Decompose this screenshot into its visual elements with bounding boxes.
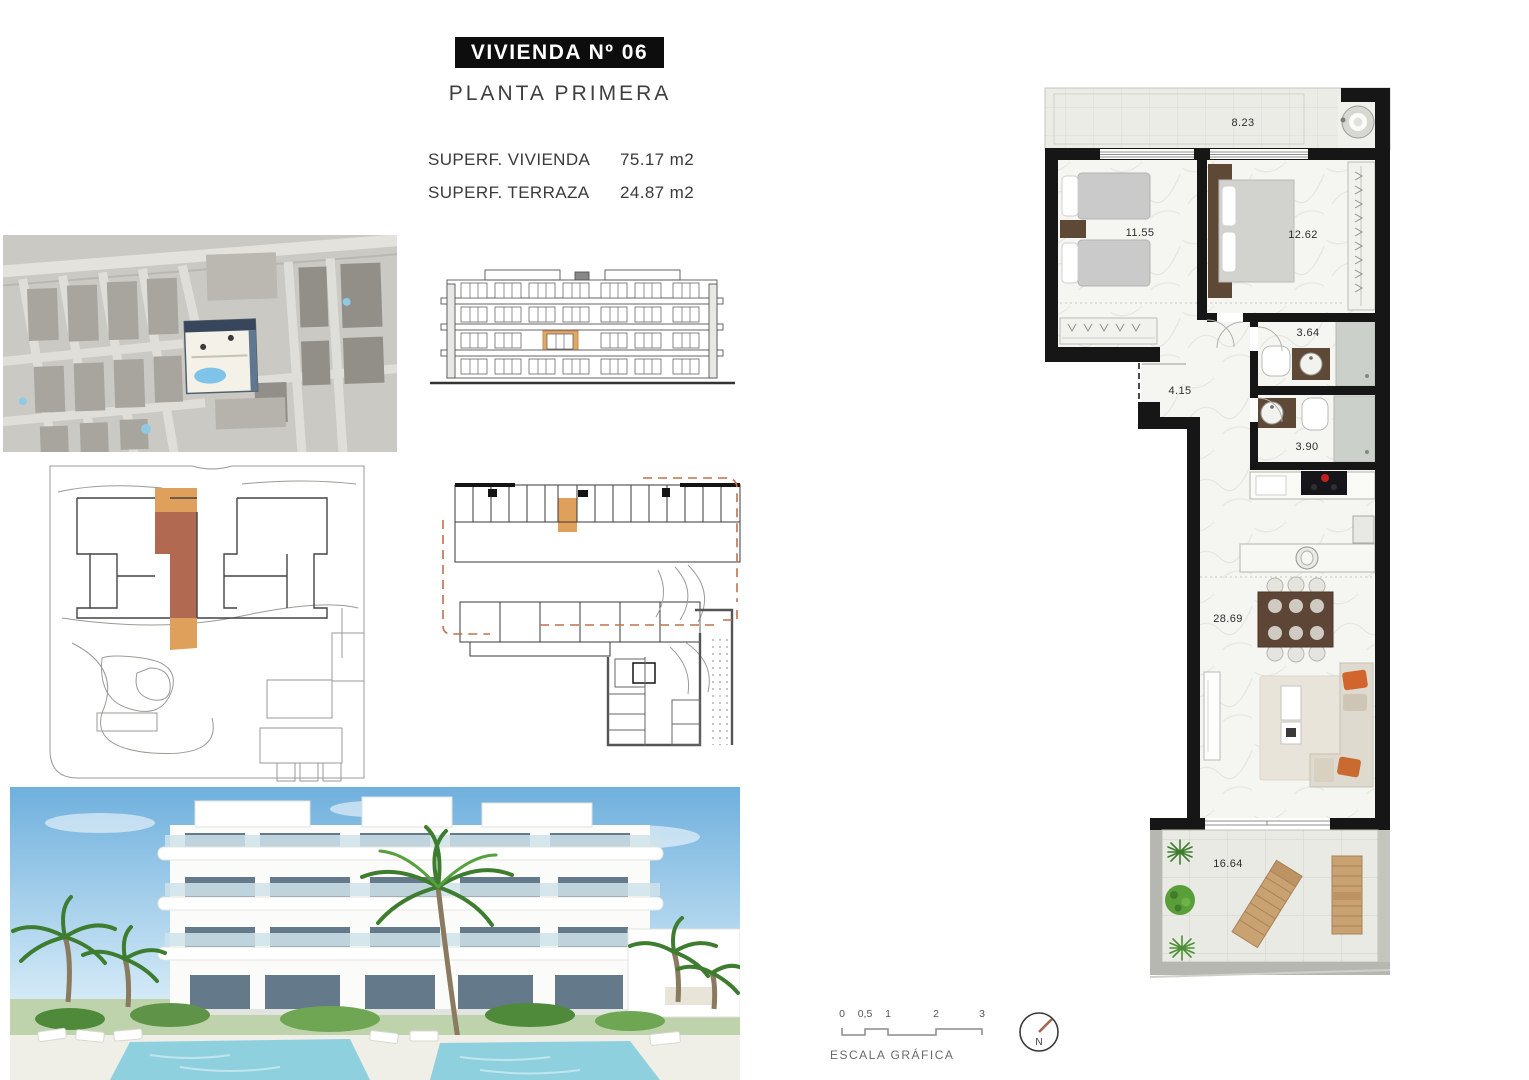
render-photo-figure [10, 787, 740, 1080]
scale-tick: 3 [979, 1008, 985, 1020]
shower [1336, 316, 1375, 386]
toilet [1262, 346, 1290, 376]
room-label-terrace-top: 8.23 [1231, 117, 1254, 129]
area-label: SUPERF. VIVIENDA [428, 150, 620, 170]
room-label-hallway: 4.15 [1168, 385, 1191, 397]
room-label-bedroom-2: 12.62 [1288, 229, 1318, 241]
key-plan-figure [430, 462, 760, 792]
key-plan-drawing [430, 462, 760, 792]
kitchen-island [1240, 544, 1375, 572]
elevation-figure [425, 258, 740, 393]
plant [1170, 936, 1194, 960]
scale-bar: 0 0,5 1 2 3 ESCALA GRÁFICA [830, 1008, 1005, 1068]
unit-title-box: VIVIENDA Nº 06 [455, 37, 664, 68]
vanity-sink [1292, 348, 1330, 380]
aerial-map-figure [3, 235, 397, 452]
render-photo [10, 787, 740, 1080]
cooktop [1301, 471, 1347, 495]
wardrobe [1348, 162, 1375, 310]
site-plan-drawing [42, 458, 372, 785]
bedroom-1 [1060, 173, 1157, 344]
scale-tick: 0,5 [858, 1008, 873, 1020]
floor-plan-figure: 8.23 11.55 12.62 3.64 4.15 3.90 28.69 16… [1038, 80, 1398, 985]
area-label: SUPERF. TERRAZA [428, 183, 620, 203]
terrace-top [1045, 88, 1390, 150]
elevation-drawing [425, 258, 740, 393]
room-label-terrace-bottom: 16.64 [1213, 858, 1243, 870]
toilet [1302, 398, 1328, 430]
scale-tick: 0 [839, 1008, 845, 1020]
sheet: VIVIENDA Nº 06 PLANTA PRIMERA SUPERF. VI… [0, 0, 1529, 1080]
plant [1165, 885, 1195, 915]
fridge [1353, 516, 1374, 543]
double-bed [1208, 180, 1294, 282]
area-row-terraza: SUPERF. TERRAZA 24.87 m2 [428, 183, 728, 203]
room-label-bedroom-1: 11.55 [1126, 227, 1155, 239]
floor-subtitle: PLANTA PRIMERA [420, 82, 700, 106]
room-label-bathroom-2: 3.90 [1295, 441, 1318, 453]
nightstand [1060, 220, 1086, 238]
single-bed [1062, 173, 1150, 219]
aerial-map-content [3, 235, 397, 452]
coffee-table [1281, 686, 1301, 744]
map-highlighted-building [184, 319, 257, 393]
aerial-map-image [3, 235, 397, 452]
key-plan-dashed-boundary [443, 478, 737, 634]
area-value: 24.87 m2 [620, 183, 694, 203]
compass-needle [1039, 1019, 1052, 1032]
site-plan-figure [42, 458, 372, 785]
key-plan-highlight [558, 498, 577, 532]
compass-icon: N [1016, 1009, 1062, 1055]
dining-table [1258, 592, 1333, 647]
floor-plan: 8.23 11.55 12.62 3.64 4.15 3.90 28.69 16… [1038, 80, 1398, 985]
nightstand [1208, 282, 1232, 298]
tv-cabinet [1204, 672, 1220, 760]
compass-north-label: N [1035, 1037, 1042, 1048]
nightstand [1208, 164, 1232, 180]
terrace-glass-door [1205, 821, 1330, 825]
scale-tick: 2 [933, 1008, 939, 1020]
sun-lounger [1332, 856, 1362, 934]
unit-title: VIVIENDA Nº 06 [471, 41, 648, 65]
scale-bar-line [830, 1024, 1005, 1040]
plant [1168, 840, 1192, 864]
room-label-bathroom-1: 3.64 [1296, 327, 1319, 339]
room-label-living: 28.69 [1213, 613, 1243, 625]
compass: N [1016, 1009, 1062, 1055]
site-highlight [155, 488, 197, 650]
render-building [158, 797, 663, 1015]
area-summary: SUPERF. VIVIENDA 75.17 m2 SUPERF. TERRAZ… [428, 150, 728, 216]
area-value: 75.17 m2 [620, 150, 694, 170]
scale-bar-caption: ESCALA GRÁFICA [830, 1048, 954, 1062]
vanity-sink [1252, 398, 1296, 428]
wardrobe [1060, 318, 1157, 344]
terrace-bottom [1150, 830, 1390, 977]
area-row-vivienda: SUPERF. VIVIENDA 75.17 m2 [428, 150, 728, 170]
scale-tick: 1 [885, 1008, 891, 1020]
single-bed [1062, 240, 1150, 286]
